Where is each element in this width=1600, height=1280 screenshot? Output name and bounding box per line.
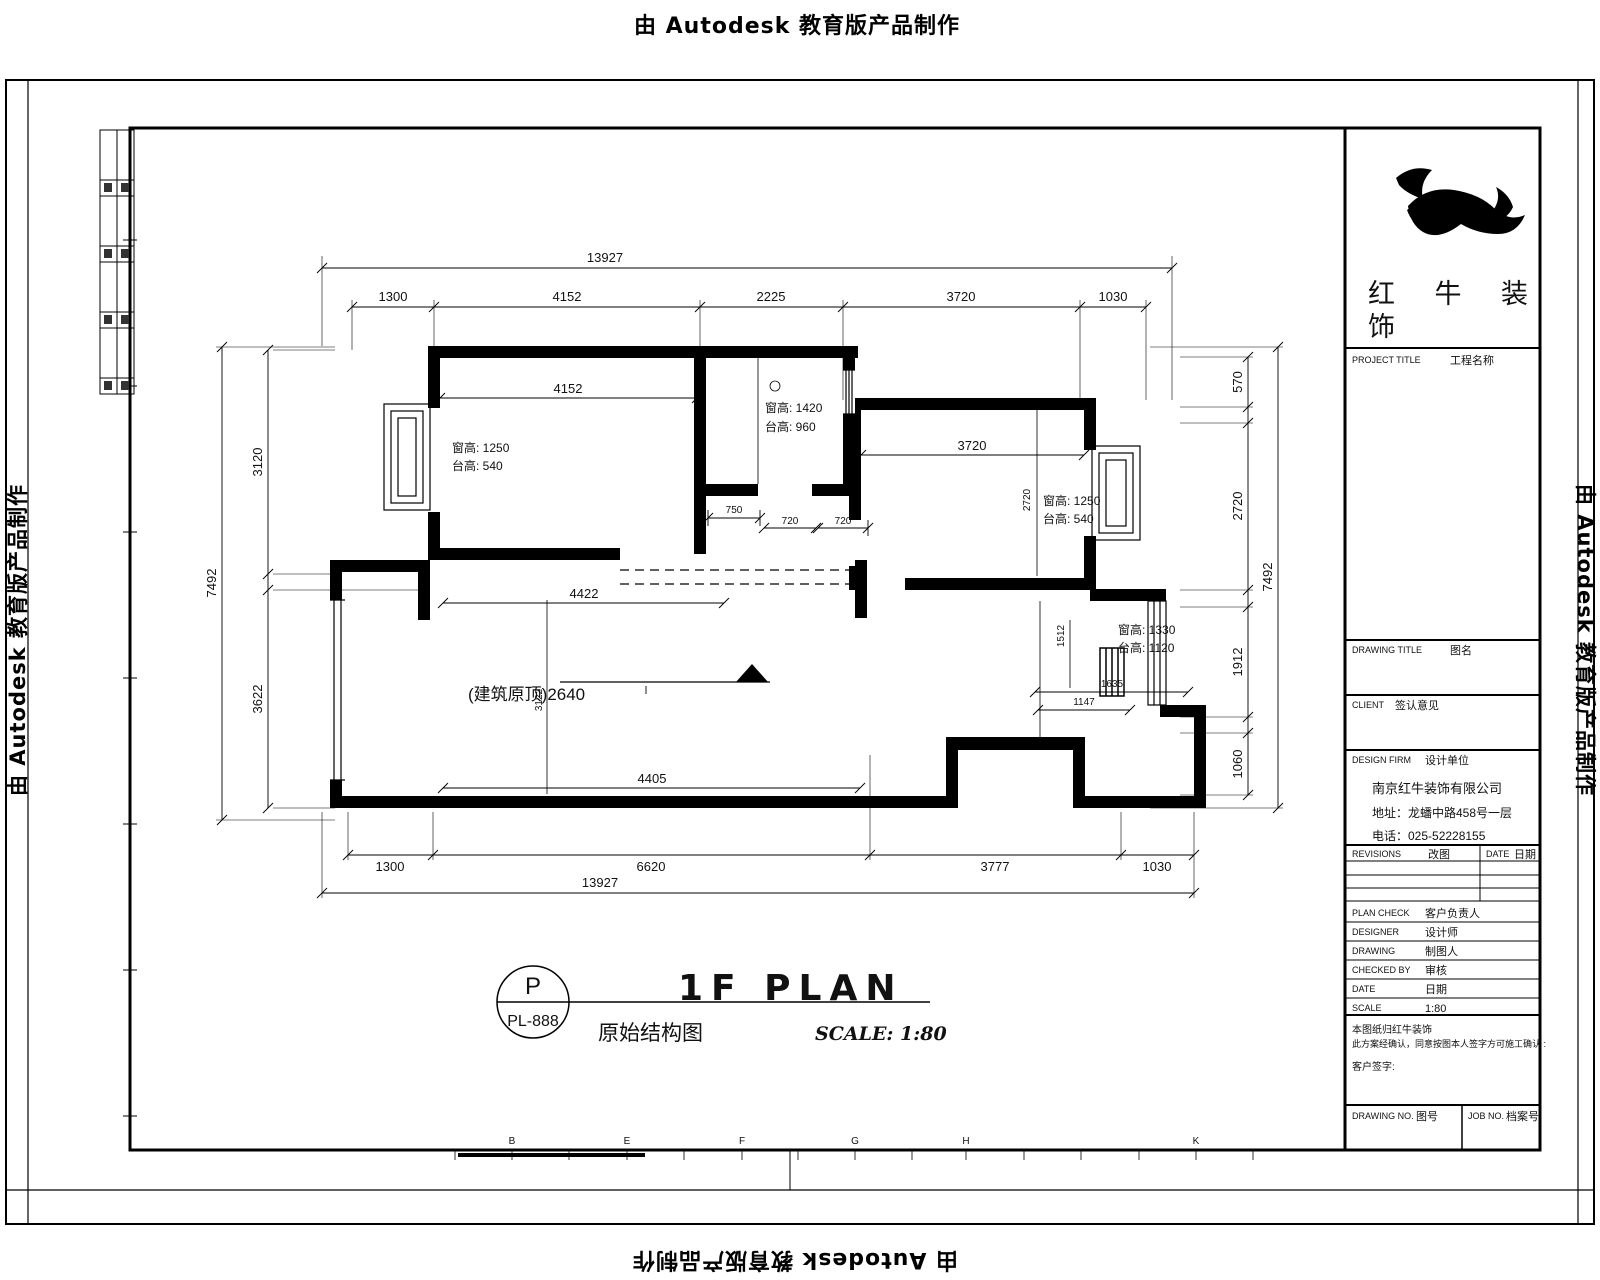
dim-top-seg4: 1030 [1099, 289, 1128, 304]
revisions-cn: 改图 [1428, 847, 1450, 861]
note-line-1: 本图纸归红牛装饰 [1352, 1023, 1432, 1036]
dim-top-overall: 13927 [587, 250, 623, 265]
sheet: 13927 1300 4152 2225 3720 1030 1300 6620… [0, 0, 1600, 1280]
level-triangle-icon [736, 664, 768, 682]
note-line-3: 客户签字: [1352, 1060, 1395, 1073]
row-scale-label: SCALE [1352, 1003, 1382, 1013]
bed2-sill-height: 台高: 540 [1043, 511, 1094, 526]
company-address: 地址：龙蟠中路458号一层 [1372, 805, 1512, 820]
row-designer-label: DESIGNER [1352, 927, 1400, 937]
row-checkedby-label: CHECKED BY [1352, 965, 1411, 975]
dim-right-overall: 7492 [1260, 563, 1275, 592]
grid-letter-h: H [962, 1136, 969, 1147]
drawing-title-cn: 图名 [1450, 643, 1472, 657]
row-date-label: DATE [1352, 984, 1375, 994]
dim-top-seg2: 2225 [757, 289, 786, 304]
plan-title: 1F PLAN [678, 968, 904, 1009]
floor-plan-walls [330, 346, 1206, 808]
row-drawing-label: DRAWING [1352, 946, 1395, 956]
dim-right-seg2: 1912 [1230, 648, 1245, 677]
brand-name-line2: 饰 [1368, 312, 1395, 342]
dim-top-seg1: 4152 [553, 289, 582, 304]
dim-kitchen-1: 1635 [1101, 679, 1124, 690]
row-drawing-value: 制图人 [1425, 945, 1458, 958]
dim-bed1: 4152 [554, 381, 583, 396]
dim-bottom-overall: 13927 [582, 875, 618, 890]
dim-right-seg1: 2720 [1230, 492, 1245, 521]
plan-subtitle: 原始结构图 [598, 1022, 703, 1045]
grid-letter-k: K [1193, 1136, 1200, 1147]
row-plancheck-value: 客户负责人 [1425, 906, 1480, 920]
bed1-window-height: 窗高: 1250 [452, 440, 510, 455]
bubble-letter: P [525, 973, 541, 1000]
drawing-no-label: DRAWING NO. [1352, 1111, 1414, 1121]
row-date-value: 日期 [1425, 983, 1447, 996]
dim-door-1: 720 [782, 516, 799, 527]
dim-living-bottom: 4405 [638, 771, 667, 786]
ceiling-level-label: (建筑原顶)2640 [468, 685, 585, 704]
grid-letter-b: B [509, 1136, 516, 1147]
beam-dashed-lines [620, 570, 852, 584]
brand-name-line1: 红 牛 装 [1368, 279, 1544, 309]
grid-letter-f: F [739, 1136, 745, 1147]
row-plancheck-label: PLAN CHECK [1352, 908, 1410, 918]
dim-door-2: 720 [835, 516, 852, 527]
company-logo-icon [1396, 168, 1525, 235]
dim-door-0: 750 [726, 505, 743, 516]
bubble-number: PL-888 [507, 1013, 559, 1030]
revisions-date-label: DATE [1486, 849, 1509, 859]
row-designer-value: 设计师 [1425, 926, 1458, 939]
company-phone: 电话：025-52228155 [1372, 829, 1486, 843]
project-title-label: PROJECT TITLE [1352, 355, 1421, 365]
drawing-title-label: DRAWING TITLE [1352, 645, 1422, 655]
dim-left-overall: 7492 [204, 569, 219, 598]
plan-scale: SCALE: 1:80 [815, 1023, 947, 1045]
dim-right-seg0: 570 [1230, 371, 1245, 393]
job-no-cn: 档案号 [1506, 1109, 1539, 1123]
client-label: CLIENT [1352, 700, 1385, 710]
grid-letter-g: G [851, 1136, 859, 1147]
dim-top-seg0: 1300 [379, 289, 408, 304]
kitchen-sill-height: 台高: 1120 [1118, 640, 1175, 655]
grid-letter-e: E [624, 1136, 631, 1147]
grid-letters: B E F G H K [509, 1136, 1200, 1147]
note-line-2: 此方案经确认，同意按图本人签字方可施工确认 : [1352, 1038, 1546, 1049]
interior-thin-lines [547, 352, 1070, 794]
job-no-label: JOB NO. [1468, 1111, 1504, 1121]
client-cn: 签认意见 [1395, 698, 1439, 712]
dim-bottom-seg3: 1030 [1143, 859, 1172, 874]
dim-right-seg3: 1060 [1230, 750, 1245, 779]
design-firm-cn: 设计单位 [1425, 753, 1469, 767]
project-title-cn: 工程名称 [1450, 353, 1494, 367]
dim-left-seg0: 3120 [250, 448, 265, 477]
company-name: 南京红牛装饰有限公司 [1372, 781, 1502, 796]
dim-kitchen-2: 1147 [1073, 697, 1095, 708]
fixture-circle-icon [770, 381, 780, 391]
dim-bottom-seg0: 1300 [376, 859, 405, 874]
dim-bottom-seg2: 3777 [981, 859, 1010, 874]
drawing-no-cn: 图号 [1416, 1110, 1438, 1123]
dim-kitchen-vert: 1512 [1056, 624, 1067, 647]
revisions-label: REVISIONS [1352, 849, 1401, 859]
drawing-label: P PL-888 1F PLAN 原始结构图 SCALE: 1:80 [497, 966, 947, 1045]
dim-top-seg3: 3720 [947, 289, 976, 304]
kitchen-window-height: 窗高: 1330 [1118, 622, 1176, 637]
bed1-sill-height: 台高: 540 [452, 458, 503, 473]
design-firm-label: DESIGN FIRM [1352, 755, 1411, 765]
windows [330, 370, 1166, 780]
row-scale-value: 1:80 [1425, 1003, 1446, 1015]
dim-bed2: 3720 [958, 438, 987, 453]
row-checkedby-value: 审核 [1425, 963, 1447, 977]
bath-window-height: 窗高: 1420 [765, 400, 823, 415]
bath-sill-height: 台高: 960 [765, 419, 816, 434]
title-block: 红 牛 装 饰 PROJECT TITLE 工程名称 DRAWING TITLE… [1345, 168, 1546, 1150]
revisions-date-cn: 日期 [1514, 848, 1536, 861]
dim-bed2-vert: 2720 [1022, 488, 1033, 511]
dim-bottom-seg1: 6620 [637, 859, 666, 874]
bed2-window-height: 窗高: 1250 [1043, 493, 1101, 508]
dim-living-top: 4422 [570, 586, 599, 601]
dim-left-seg1: 3622 [250, 685, 265, 714]
